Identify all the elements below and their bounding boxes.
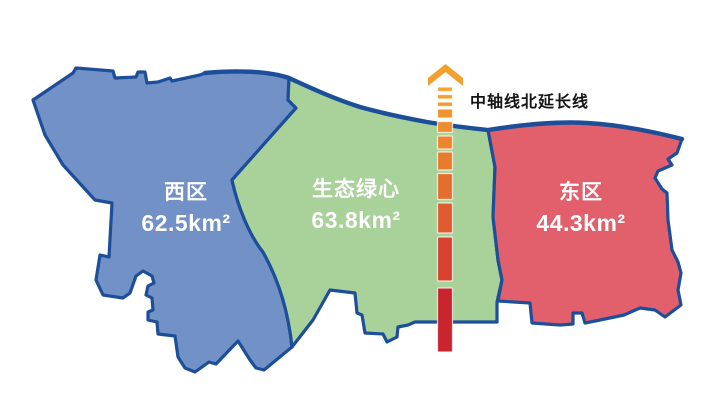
central-axis-label: 中轴线北延长线 xyxy=(470,88,589,112)
east-district-shape xyxy=(488,122,682,325)
map-canvas: 西区 62.5km² 生态绿心 63.8km² 东区 44.3km² 中轴线北延… xyxy=(0,0,718,407)
axis-dash-segment xyxy=(438,152,453,170)
axis-dash-segment xyxy=(438,122,453,133)
central-axis-dashed-line xyxy=(438,87,453,352)
axis-dash-segment xyxy=(438,288,453,352)
district-map-svg xyxy=(0,0,718,407)
axis-dash-segment xyxy=(438,87,453,92)
axis-dash-segment xyxy=(438,136,453,149)
axis-dash-segment xyxy=(438,203,453,233)
axis-dash-segment xyxy=(438,95,453,100)
axis-dash-segment xyxy=(438,237,453,281)
north-arrow-icon xyxy=(428,64,463,86)
axis-dash-segment xyxy=(438,109,453,118)
axis-dash-segment xyxy=(438,174,453,200)
axis-dash-segment xyxy=(438,102,453,107)
